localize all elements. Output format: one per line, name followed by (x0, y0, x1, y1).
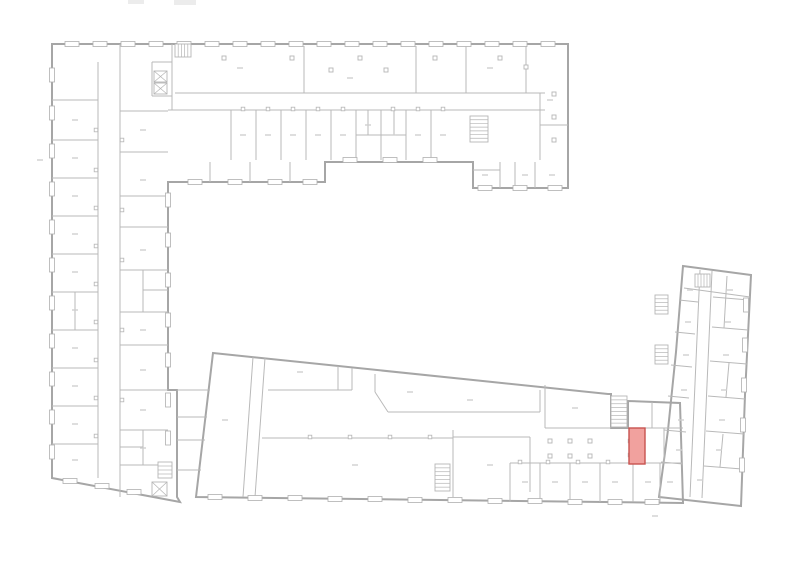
selected-room[interactable] (629, 428, 645, 464)
room-label-mark (140, 447, 146, 448)
window-mark (423, 158, 437, 163)
room-label-mark (365, 124, 371, 125)
window-mark (743, 338, 748, 352)
door-mark (546, 460, 550, 464)
window-mark (248, 496, 262, 501)
door-mark (391, 107, 395, 111)
window-mark (345, 42, 359, 47)
window-mark (488, 499, 502, 504)
door-mark (416, 107, 420, 111)
window-mark (478, 186, 492, 191)
window-mark (50, 144, 55, 158)
door-mark (94, 358, 98, 362)
room-label-mark (37, 159, 43, 160)
window-mark (317, 42, 331, 47)
window-mark (328, 497, 342, 502)
room-label-mark (140, 179, 146, 180)
window-mark (50, 334, 55, 348)
column-mark (568, 439, 572, 443)
room-label-mark (440, 134, 446, 135)
window-mark (50, 106, 55, 120)
room-label-mark (467, 399, 473, 400)
window-mark (93, 42, 107, 47)
room-label-mark (72, 233, 78, 234)
room-label-mark (727, 289, 733, 290)
door-mark (518, 460, 522, 464)
window-mark (485, 42, 499, 47)
window-mark (149, 42, 163, 47)
window-mark (373, 42, 387, 47)
window-mark (166, 193, 171, 207)
door-mark (266, 107, 270, 111)
window-mark (166, 313, 171, 327)
door-mark (94, 434, 98, 438)
room-label-mark (667, 481, 673, 482)
stairs-shaft (655, 345, 668, 364)
room-label-mark (415, 134, 421, 135)
door-mark (388, 435, 392, 439)
room-label-mark (723, 354, 729, 355)
room-label-mark (721, 389, 727, 390)
room-label-mark (719, 419, 725, 420)
room-label-mark (676, 449, 682, 450)
column-mark (548, 454, 552, 458)
window-mark (568, 500, 582, 505)
window-mark (233, 42, 247, 47)
window-mark (50, 182, 55, 196)
column-mark (358, 56, 362, 60)
window-mark (166, 353, 171, 367)
door-mark (94, 282, 98, 286)
door-mark (120, 258, 124, 262)
door-mark (120, 328, 124, 332)
window-mark (744, 298, 749, 312)
window-mark (608, 500, 622, 505)
room-label-mark (482, 174, 488, 175)
door-mark (94, 168, 98, 172)
window-mark (528, 499, 542, 504)
column-mark (568, 454, 572, 458)
window-mark (228, 180, 242, 185)
room-label-mark (522, 481, 528, 482)
room-label-mark (697, 479, 703, 480)
room-label-mark (72, 309, 78, 310)
door-mark (94, 244, 98, 248)
window-mark (401, 42, 415, 47)
room-label-mark (140, 329, 146, 330)
window-mark (95, 484, 109, 489)
room-label-mark (487, 464, 493, 465)
screen-edge-smudge (128, 0, 144, 4)
window-mark (645, 500, 659, 505)
room-label-mark (140, 129, 146, 130)
window-mark (50, 296, 55, 310)
door-mark (94, 128, 98, 132)
window-mark (368, 497, 382, 502)
window-mark (741, 418, 746, 432)
screen-edge-smudge (174, 0, 196, 5)
window-mark (513, 186, 527, 191)
room-label-mark (72, 459, 78, 460)
column-mark (329, 68, 333, 72)
room-label-mark (140, 369, 146, 370)
window-mark (205, 42, 219, 47)
room-label-mark (683, 354, 689, 355)
room-label-mark (522, 174, 528, 175)
room-label-mark (240, 134, 246, 135)
window-mark (50, 68, 55, 82)
door-mark (120, 398, 124, 402)
window-mark (50, 445, 55, 459)
window-mark (63, 479, 77, 484)
column-mark (498, 56, 502, 60)
room-label-mark (297, 371, 303, 372)
window-mark (343, 158, 357, 163)
window-mark (289, 42, 303, 47)
column-mark (552, 92, 556, 96)
floorplan-canvas (0, 0, 800, 563)
column-mark (588, 454, 592, 458)
door-mark (341, 107, 345, 111)
room-label-mark (347, 77, 353, 78)
room-label-mark (72, 157, 78, 158)
room-label-mark (725, 321, 731, 322)
room-label-mark (487, 67, 493, 68)
room-label-mark (340, 134, 346, 135)
window-mark (408, 498, 422, 503)
stairs-shaft (695, 274, 710, 287)
stairs-shaft (175, 44, 191, 57)
door-mark (120, 138, 124, 142)
room-label-mark (681, 389, 687, 390)
window-mark (166, 393, 171, 407)
window-mark (127, 490, 141, 495)
column-mark (524, 65, 528, 69)
room-label-mark (140, 409, 146, 410)
window-mark (303, 180, 317, 185)
column-mark (552, 115, 556, 119)
room-label-mark (140, 249, 146, 250)
window-mark (429, 42, 443, 47)
window-mark (513, 42, 527, 47)
window-mark (50, 410, 55, 424)
door-mark (94, 206, 98, 210)
window-mark (288, 496, 302, 501)
door-mark (308, 435, 312, 439)
room-label-mark (290, 134, 296, 135)
column-mark (290, 56, 294, 60)
room-label-mark (678, 419, 684, 420)
window-mark (457, 42, 471, 47)
window-mark (121, 42, 135, 47)
window-mark (50, 258, 55, 272)
window-mark (166, 233, 171, 247)
door-mark (316, 107, 320, 111)
room-label-mark (222, 419, 228, 420)
room-label-mark (549, 174, 555, 175)
room-label-mark (547, 99, 553, 100)
window-mark (50, 220, 55, 234)
door-mark (441, 107, 445, 111)
window-mark (740, 458, 745, 472)
floorplan-viewport (0, 0, 800, 563)
column-mark (433, 56, 437, 60)
window-mark (166, 431, 171, 445)
window-mark (742, 378, 747, 392)
door-mark (94, 396, 98, 400)
column-mark (588, 439, 592, 443)
window-mark (50, 372, 55, 386)
room-label-mark (265, 134, 271, 135)
window-mark (448, 498, 462, 503)
room-label-mark (72, 423, 78, 424)
window-mark (261, 42, 275, 47)
door-mark (120, 208, 124, 212)
column-mark (222, 56, 226, 60)
window-mark (166, 273, 171, 287)
room-label-mark (582, 481, 588, 482)
room-label-mark (716, 449, 722, 450)
window-mark (268, 180, 282, 185)
stairs-shaft (655, 295, 668, 314)
door-mark (576, 460, 580, 464)
column-mark (552, 138, 556, 142)
window-mark (548, 186, 562, 191)
room-label-mark (572, 407, 578, 408)
window-mark (188, 180, 202, 185)
door-mark (291, 107, 295, 111)
column-mark (384, 68, 388, 72)
room-label-mark (72, 119, 78, 120)
room-label-mark (552, 481, 558, 482)
door-mark (94, 320, 98, 324)
room-label-mark (390, 134, 396, 135)
room-label-mark (685, 321, 691, 322)
window-mark (65, 42, 79, 47)
room-label-mark (352, 464, 358, 465)
room-label-mark (237, 67, 243, 68)
door-mark (348, 435, 352, 439)
window-mark (208, 495, 222, 500)
room-label-mark (72, 271, 78, 272)
room-label-mark (72, 347, 78, 348)
door-mark (428, 435, 432, 439)
column-mark (548, 439, 552, 443)
window-mark (383, 158, 397, 163)
window-mark (541, 42, 555, 47)
room-label-mark (687, 289, 693, 290)
room-label-mark (612, 481, 618, 482)
room-label-mark (315, 134, 321, 135)
room-label-mark (407, 391, 413, 392)
door-mark (606, 460, 610, 464)
room-label-mark (645, 481, 651, 482)
room-label-mark (72, 195, 78, 196)
room-label-mark (72, 385, 78, 386)
door-mark (241, 107, 245, 111)
room-label-mark (652, 515, 658, 516)
